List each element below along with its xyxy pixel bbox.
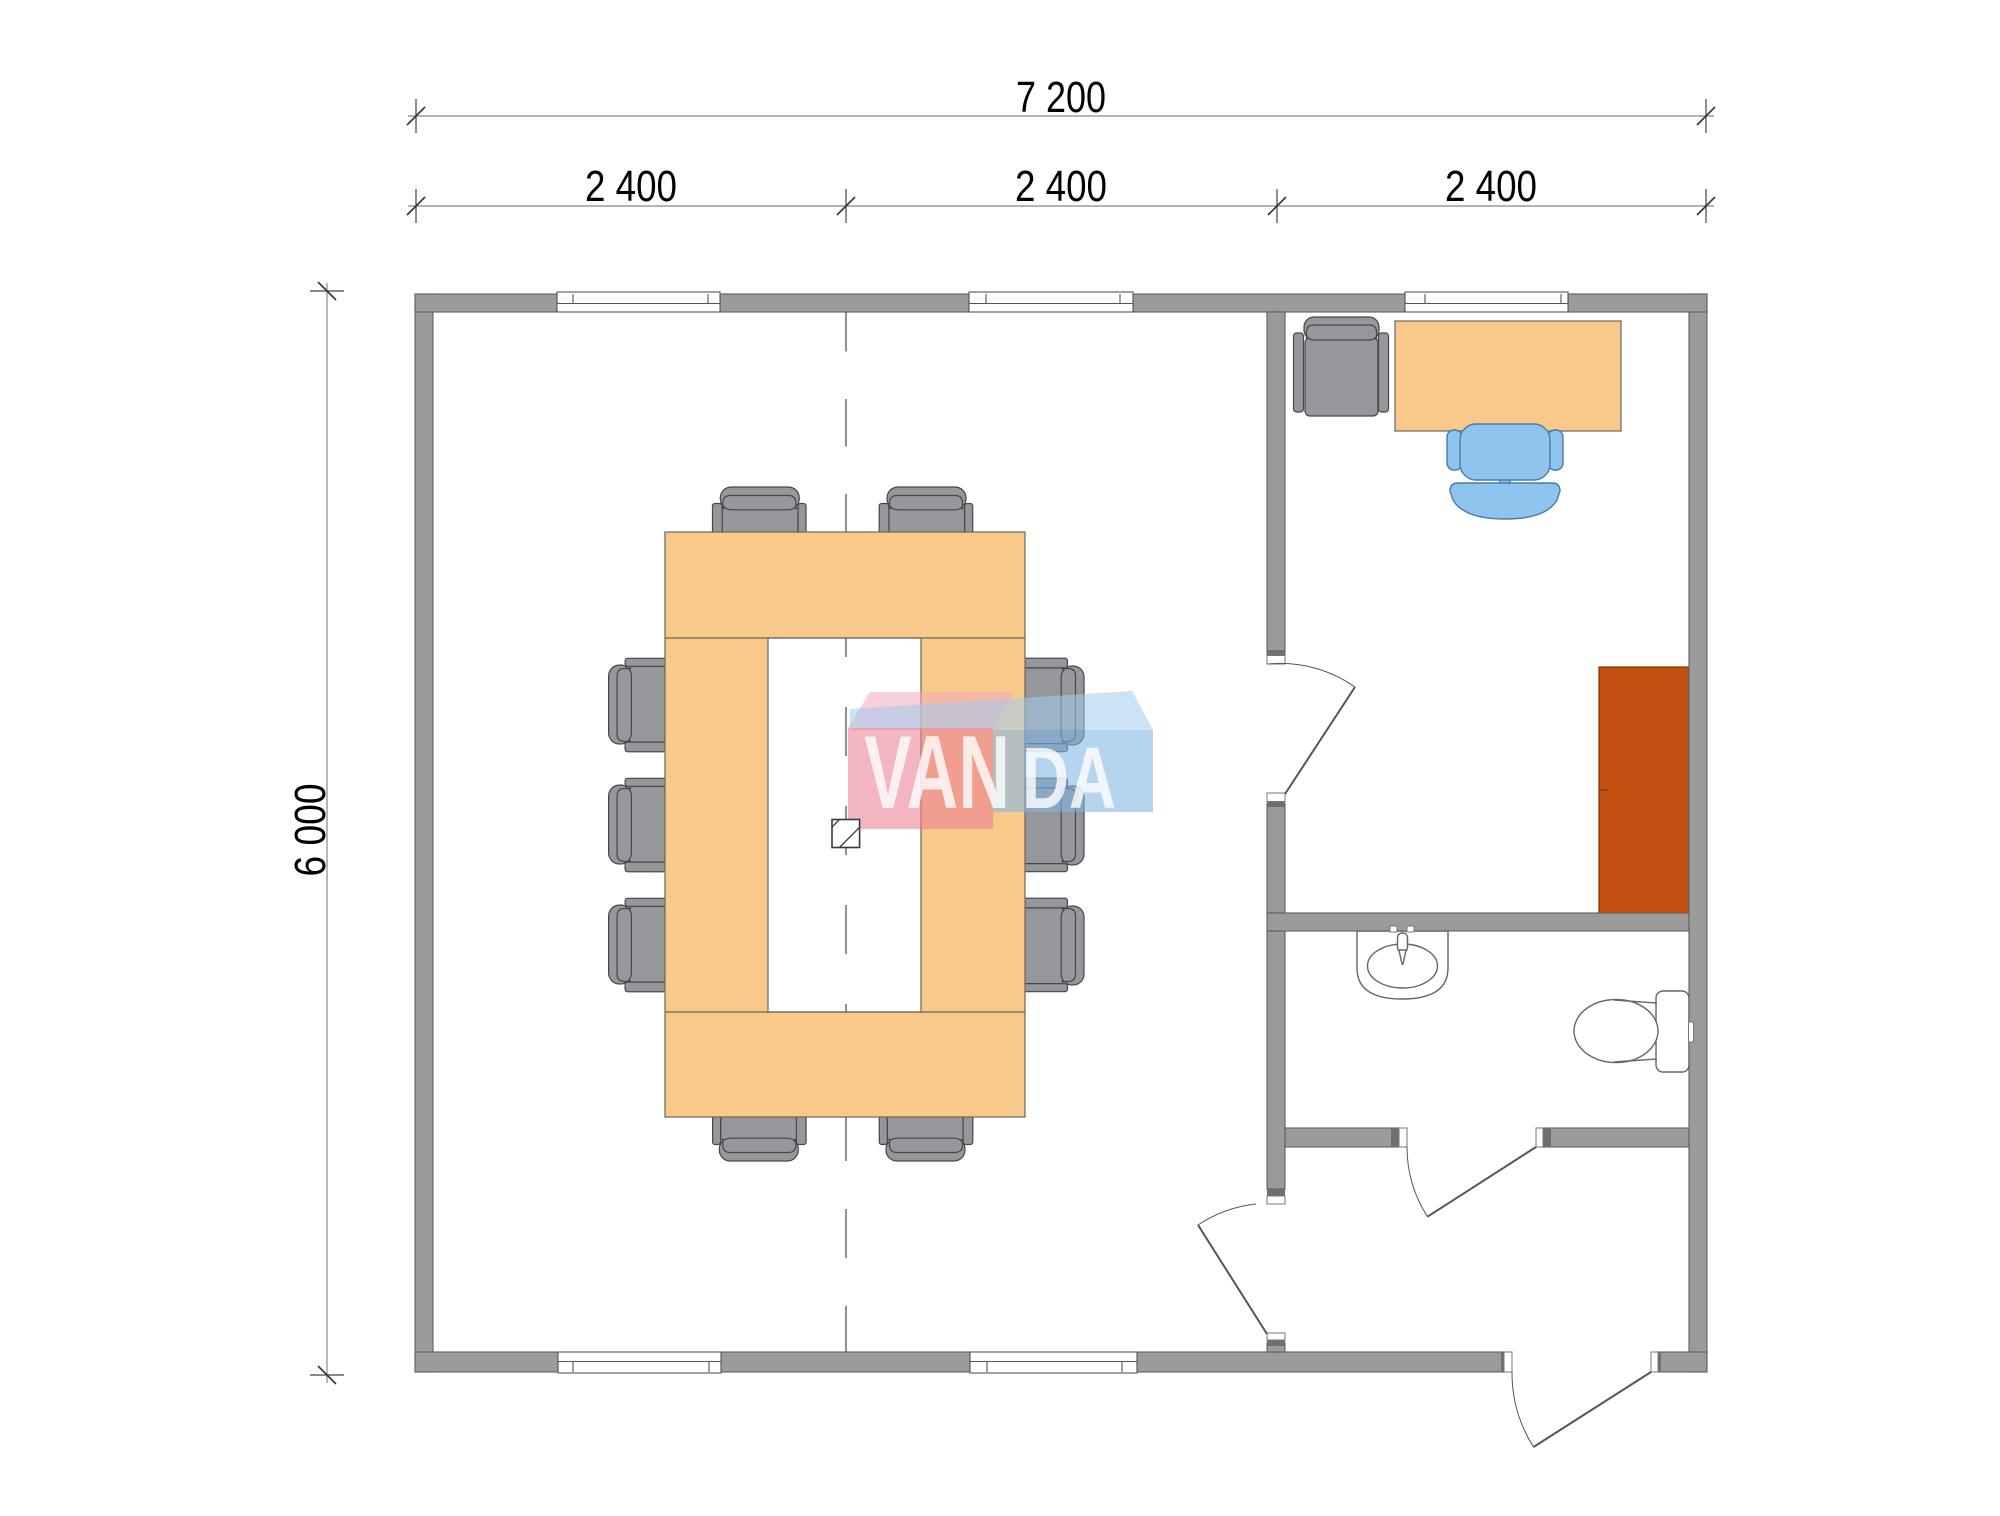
svg-text:2 400: 2 400 <box>1015 162 1107 211</box>
svg-text:VAN: VAN <box>864 715 1010 831</box>
svg-text:2 400: 2 400 <box>1445 162 1537 211</box>
svg-text:7 200: 7 200 <box>1016 73 1106 122</box>
svg-text:DA: DA <box>1022 730 1116 827</box>
svg-text:6 000: 6 000 <box>286 784 335 877</box>
svg-text:2 400: 2 400 <box>585 162 677 211</box>
